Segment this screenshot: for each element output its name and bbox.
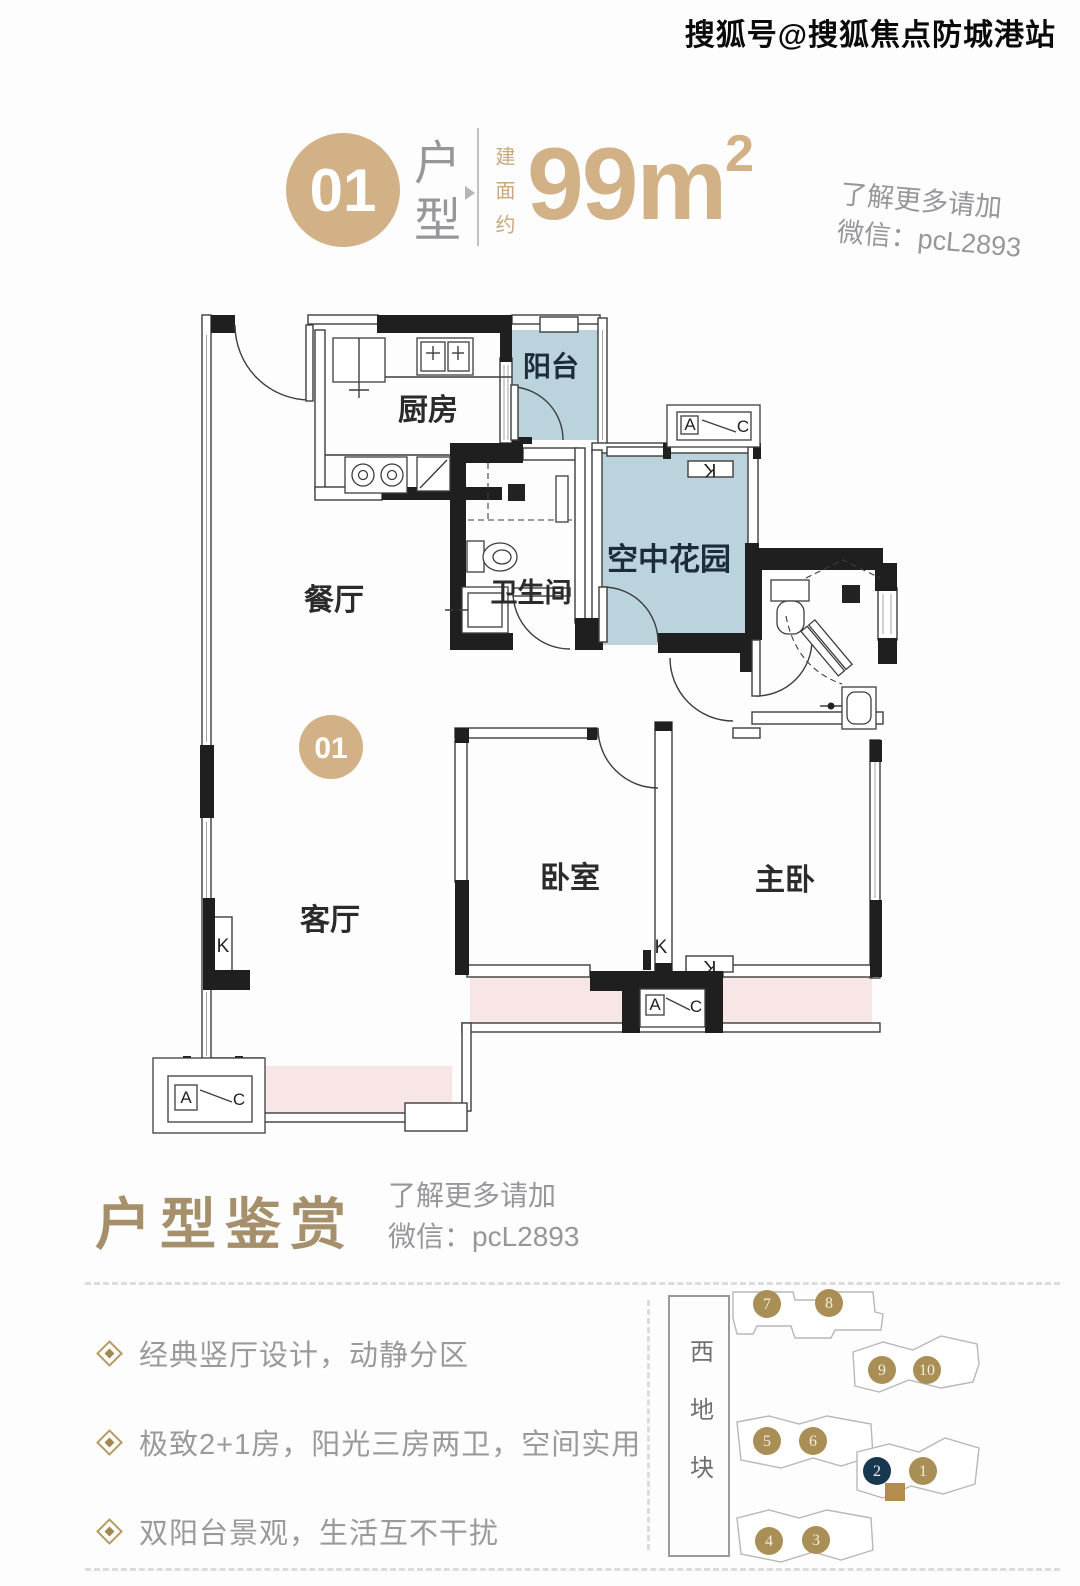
ac-unit-top: A C: [667, 405, 760, 447]
svg-text:C: C: [737, 417, 749, 436]
selling-points-list: 经典竖厅设计，动静分区 极致2+1房，阳光三房两卫，空间实用 双阳台景观，生活互…: [96, 1332, 596, 1586]
svg-text:2: 2: [873, 1463, 881, 1480]
svg-text:10: 10: [919, 1362, 935, 1379]
dashed-divider-top: [85, 1282, 1060, 1285]
contact-info-bottom: 了解更多请加 微信：pcL2893: [388, 1176, 579, 1257]
svg-text:8: 8: [825, 1295, 833, 1312]
room-label-dining: 餐厅: [304, 584, 364, 617]
watermark: 搜狐号@搜狐焦点防城港站: [685, 10, 1056, 54]
contact-bottom-line2: 微信：pcL2893: [388, 1217, 579, 1258]
list-item: 双阳台景观，生活互不干扰: [96, 1510, 596, 1552]
header-divider: [477, 128, 479, 246]
section-title: 户型鉴赏: [95, 1180, 355, 1261]
svg-text:A: A: [649, 995, 661, 1014]
header-arrow-icon: [465, 186, 475, 200]
svg-text:9: 9: [878, 1362, 886, 1379]
ac-unit-bottom-middle: A C: [640, 989, 705, 1027]
bullet-text: 双阳台景观，生活互不干扰: [139, 1510, 499, 1552]
room-label-kitchen: 厨房: [398, 394, 458, 427]
room-label-living: 客厅: [300, 903, 360, 937]
buildings-svg: 7 8 9 10 5 6 2 1 4 3: [645, 1288, 1075, 1580]
svg-text:K: K: [703, 956, 716, 977]
unit-position-badge: 01: [299, 715, 363, 779]
svg-text:K: K: [703, 459, 716, 480]
contact-bottom-line1: 了解更多请加: [388, 1176, 579, 1217]
svg-text:7: 7: [763, 1296, 771, 1313]
room-label-sky-garden: 空中花园: [607, 542, 731, 577]
unit-location-square: [885, 1483, 905, 1501]
svg-text:3: 3: [812, 1532, 820, 1549]
room-label-balcony: 阳台: [523, 350, 579, 382]
svg-text:5: 5: [763, 1433, 771, 1450]
svg-text:6: 6: [809, 1433, 817, 1450]
unit-number-badge: 01: [286, 133, 400, 247]
svg-text:A: A: [180, 1088, 192, 1107]
svg-text:01: 01: [314, 732, 347, 765]
flyer-page: 搜狐号@搜狐焦点防城港站 01 户型 建面约 99m2 了解更多请加 微信：pc…: [0, 0, 1080, 1586]
area-prefix-label: 建面约: [492, 146, 514, 248]
building-outlines: [733, 1292, 979, 1562]
diamond-bullet-icon: [96, 1340, 123, 1367]
list-item: 经典竖厅设计，动静分区: [96, 1332, 596, 1374]
list-item: 极致2+1房，阳光三房两卫，空间实用: [96, 1421, 596, 1463]
site-map: 西地块 7 8 9 10 5 6 2 1 4 3: [645, 1288, 1075, 1580]
bullet-text: 经典竖厅设计，动静分区: [139, 1332, 469, 1374]
svg-text:C: C: [690, 997, 702, 1016]
diamond-bullet-icon: [96, 1429, 123, 1456]
floorplan-svg: A C A C A C K K K K 厨房 阳台: [135, 295, 905, 1155]
area-value: 99m2: [527, 128, 754, 235]
room-label-bedroom: 卧室: [540, 861, 600, 895]
bullet-text: 极致2+1房，阳光三房两卫，空间实用: [139, 1421, 641, 1463]
unit-type-label: 户型: [404, 138, 462, 252]
svg-text:4: 4: [765, 1533, 773, 1550]
master-bath-fixtures: [771, 560, 880, 729]
room-label-master: 主卧: [755, 864, 815, 897]
ac-unit-bottom-left: A C: [153, 1058, 265, 1133]
svg-text:1: 1: [919, 1463, 927, 1480]
area-number: 99m: [527, 127, 725, 241]
svg-text:A: A: [684, 415, 696, 434]
svg-text:K: K: [655, 937, 668, 958]
room-label-bathroom: 卫生间: [491, 578, 572, 608]
diamond-bullet-icon: [96, 1518, 123, 1545]
area-superscript: 2: [725, 125, 754, 183]
svg-text:C: C: [233, 1090, 245, 1109]
svg-text:K: K: [217, 936, 230, 957]
contact-info-top: 了解更多请加 微信：pcL2893: [835, 176, 1025, 267]
